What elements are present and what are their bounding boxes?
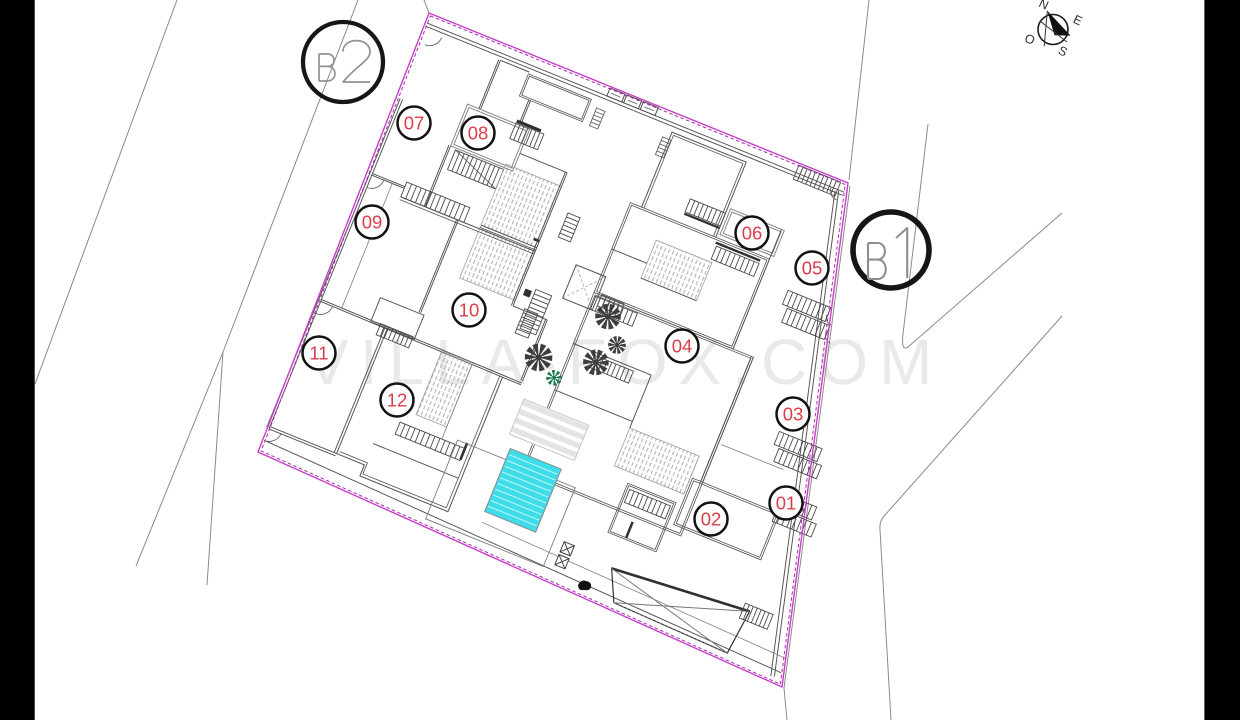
svg-text:07: 07 [404,112,425,133]
svg-text:11: 11 [309,342,328,363]
svg-text:06: 06 [742,222,763,243]
svg-text:03: 03 [783,403,804,424]
svg-text:05: 05 [802,257,823,278]
svg-text:12: 12 [387,389,408,410]
svg-text:10: 10 [459,299,480,320]
svg-text:04: 04 [672,335,693,356]
svg-text:08: 08 [468,122,489,143]
svg-text:02: 02 [701,508,722,529]
svg-text:01: 01 [776,492,797,513]
svg-text:09: 09 [362,211,383,232]
